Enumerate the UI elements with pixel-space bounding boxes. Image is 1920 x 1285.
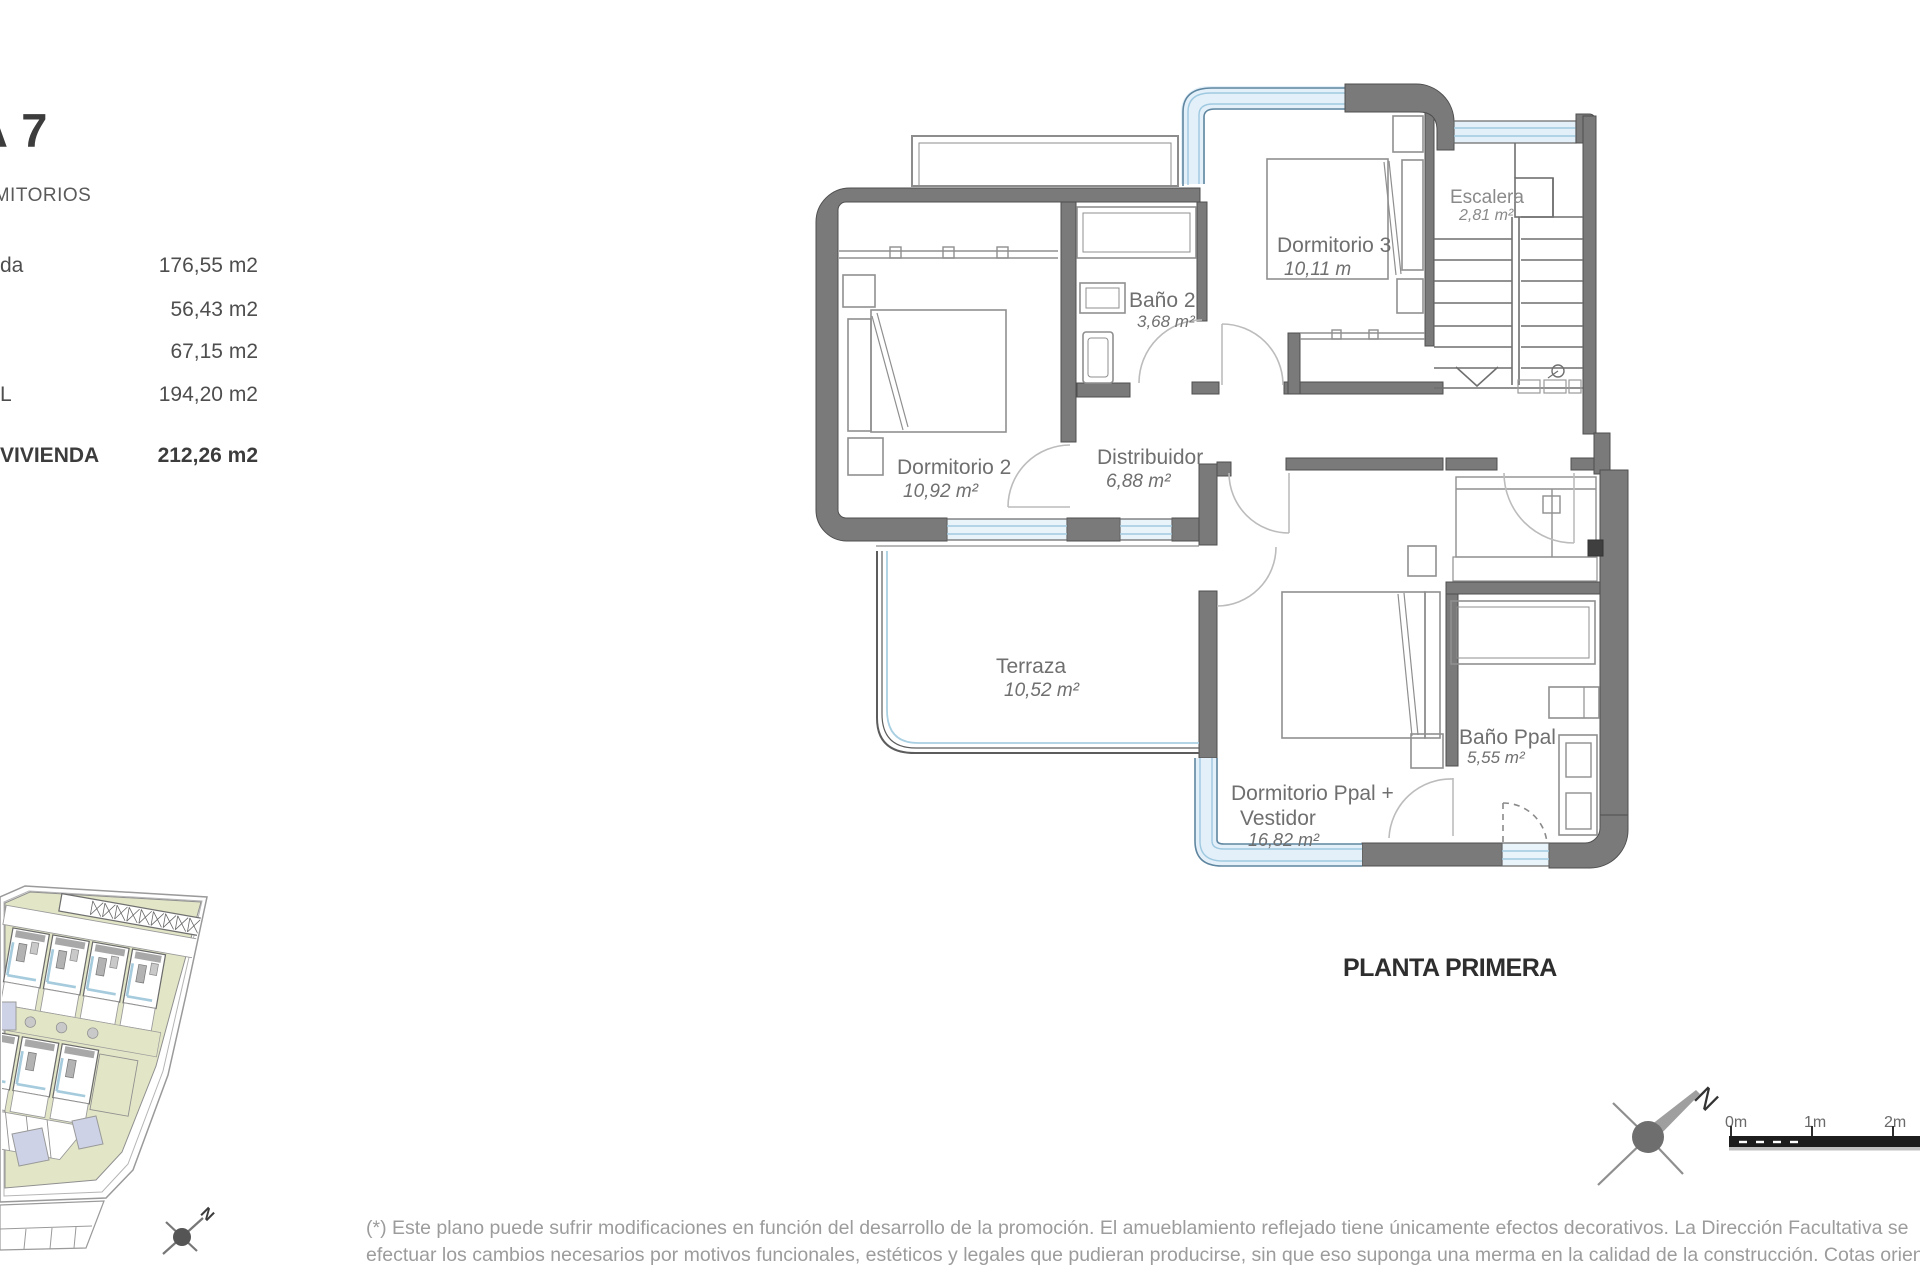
svg-text:5,55 m²: 5,55 m² — [1467, 748, 1526, 767]
svg-text:3,68 m²: 3,68 m² — [1137, 312, 1196, 331]
svg-text:Baño 2: Baño 2 — [1129, 289, 1196, 312]
svg-text:10,52 m²: 10,52 m² — [1004, 680, 1080, 701]
svg-text:N: N — [1688, 1081, 1724, 1117]
svg-text:Vestidor: Vestidor — [1240, 807, 1316, 830]
svg-text:0m: 0m — [1725, 1114, 1747, 1131]
svg-text:Dormitorio 2: Dormitorio 2 — [897, 456, 1011, 479]
svg-text:2m: 2m — [1884, 1114, 1906, 1131]
svg-text:10,92 m²: 10,92 m² — [903, 481, 979, 502]
svg-text:2,81 m²: 2,81 m² — [1458, 207, 1514, 224]
svg-text:Dormitorio Ppal +: Dormitorio Ppal + — [1231, 782, 1394, 805]
svg-text:Distribuidor: Distribuidor — [1097, 446, 1203, 469]
svg-text:Baño Ppal: Baño Ppal — [1459, 726, 1556, 749]
svg-text:Terraza: Terraza — [996, 655, 1066, 678]
svg-text:Escalera: Escalera — [1450, 187, 1524, 208]
svg-text:10,11 m: 10,11 m — [1284, 259, 1351, 280]
svg-text:6,88 m²: 6,88 m² — [1106, 471, 1171, 492]
svg-text:Dormitorio 3: Dormitorio 3 — [1277, 234, 1391, 257]
svg-text:16,82 m²: 16,82 m² — [1248, 830, 1320, 850]
svg-text:PLANTA PRIMERA: PLANTA PRIMERA — [1343, 954, 1557, 982]
svg-text:1m: 1m — [1804, 1114, 1826, 1131]
